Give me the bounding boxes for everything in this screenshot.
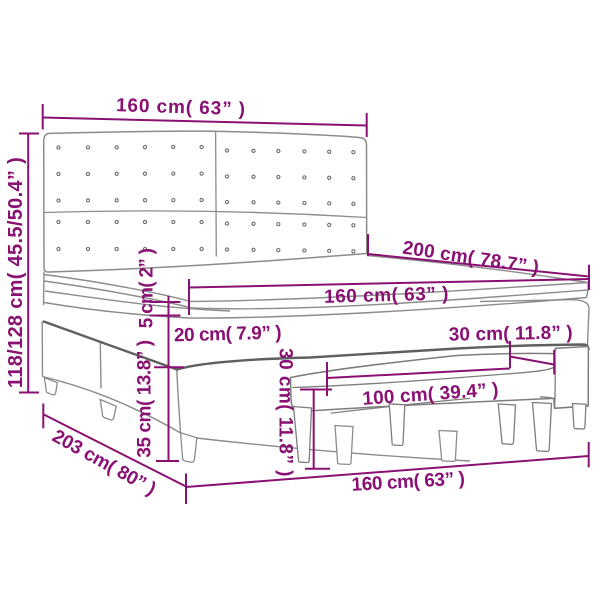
svg-text:35 cm( 13.8” ): 35 cm( 13.8” ) <box>135 340 156 457</box>
svg-text:20 cm( 7.9” ): 20 cm( 7.9” ) <box>174 323 282 347</box>
svg-text:160 cm( 63” ): 160 cm( 63” ) <box>116 95 247 120</box>
svg-text:30 cm( 11.8” ): 30 cm( 11.8” ) <box>449 323 573 346</box>
svg-text:118/128 cm( 45.5/50.4” ): 118/128 cm( 45.5/50.4” ) <box>5 157 27 388</box>
svg-text:30 cm( 11.8” ): 30 cm( 11.8” ) <box>274 348 295 477</box>
svg-text:160 cm( 63” ): 160 cm( 63” ) <box>324 284 449 308</box>
svg-text:5 cm( 2” ): 5 cm( 2” ) <box>137 248 158 328</box>
